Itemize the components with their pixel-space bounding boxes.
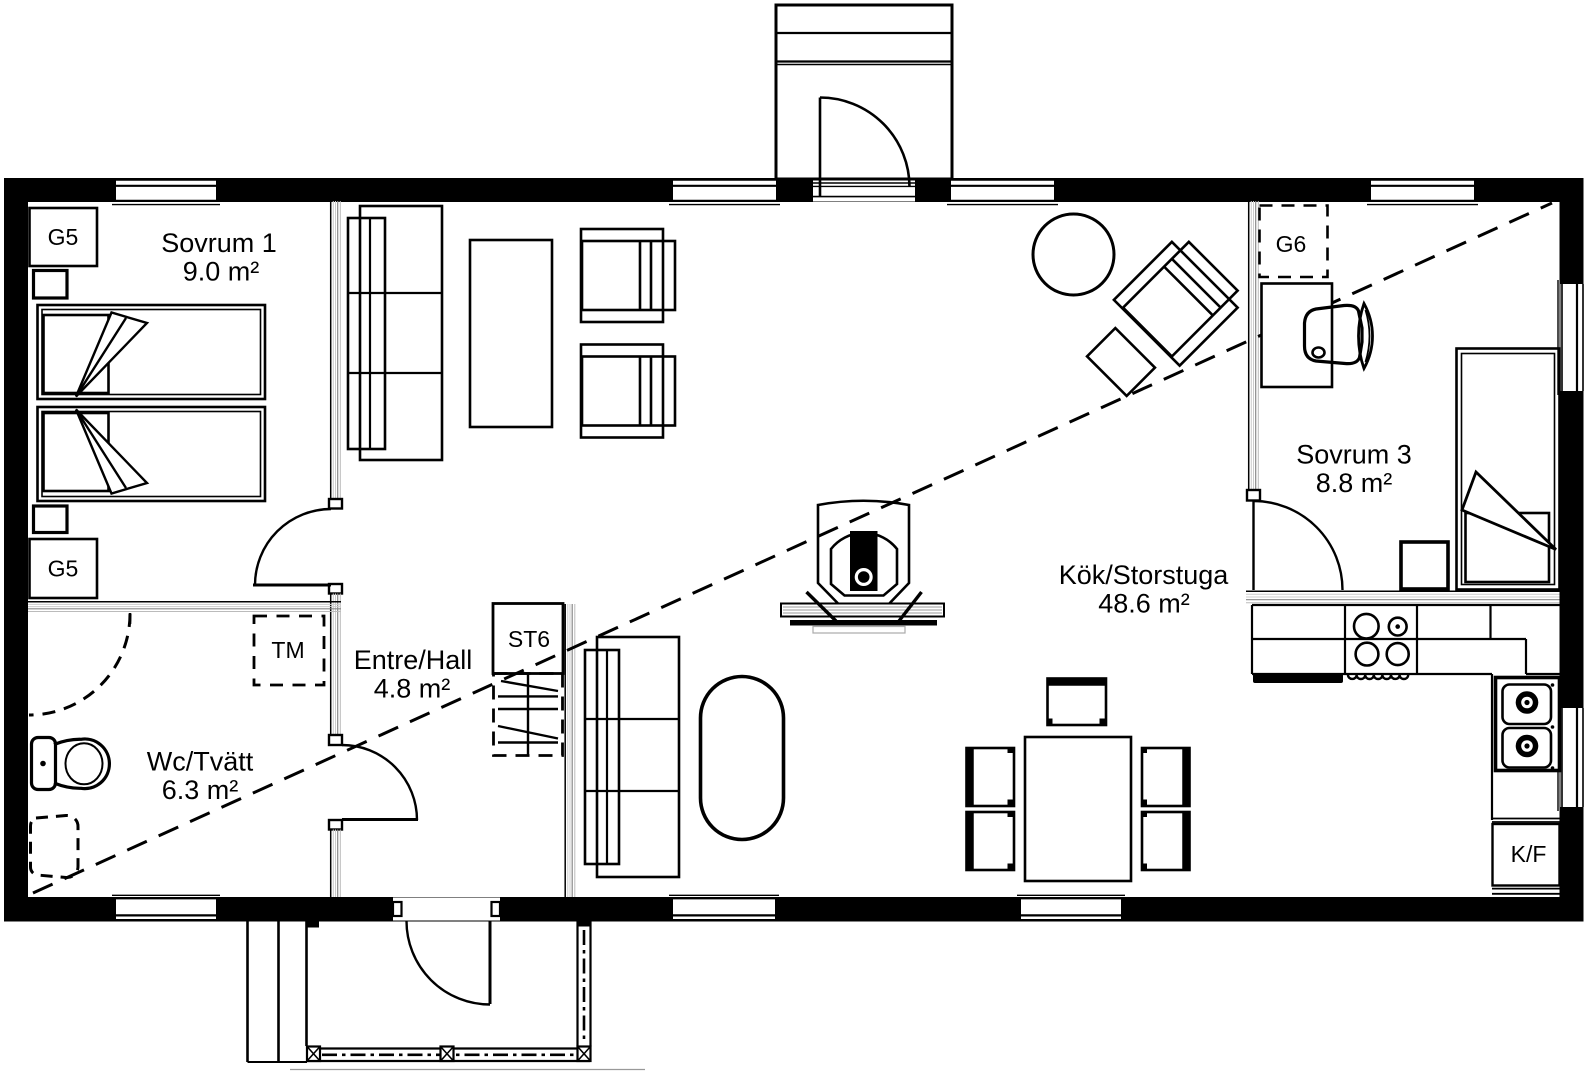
svg-text:6.3 m²: 6.3 m² xyxy=(162,775,239,805)
svg-text:G6: G6 xyxy=(1276,231,1307,257)
svg-text:8.8 m²: 8.8 m² xyxy=(1316,468,1393,498)
svg-text:4.8 m²: 4.8 m² xyxy=(374,674,451,704)
svg-text:G5: G5 xyxy=(48,556,79,582)
svg-text:9.0 m²: 9.0 m² xyxy=(183,257,260,287)
svg-text:K/F: K/F xyxy=(1511,841,1547,867)
svg-text:Entre/Hall: Entre/Hall xyxy=(354,645,473,675)
svg-text:TM: TM xyxy=(271,637,304,663)
svg-text:ST6: ST6 xyxy=(508,626,550,652)
svg-text:Kök/Storstuga: Kök/Storstuga xyxy=(1059,560,1230,590)
svg-text:Sovrum 1: Sovrum 1 xyxy=(161,228,277,258)
svg-text:G5: G5 xyxy=(48,224,79,250)
svg-text:Sovrum 3: Sovrum 3 xyxy=(1296,440,1412,470)
svg-text:Wc/Tvätt: Wc/Tvätt xyxy=(147,747,254,777)
svg-text:48.6 m²: 48.6 m² xyxy=(1098,589,1190,619)
